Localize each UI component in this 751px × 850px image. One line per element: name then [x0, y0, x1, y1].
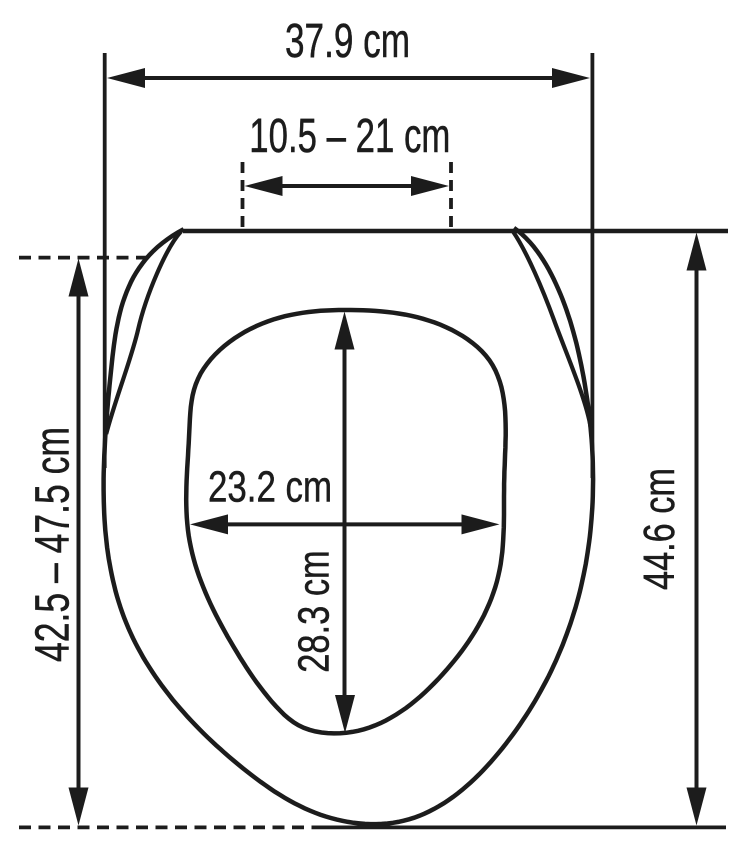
svg-text:28.3 cm: 28.3 cm	[290, 550, 339, 673]
svg-text:44.6 cm: 44.6 cm	[635, 468, 684, 590]
svg-text:42.5 – 47.5 cm: 42.5 – 47.5 cm	[26, 427, 79, 662]
svg-text:23.2 cm: 23.2 cm	[208, 463, 332, 512]
svg-text:37.9 cm: 37.9 cm	[285, 15, 410, 68]
svg-text:10.5 – 21 cm: 10.5 – 21 cm	[249, 110, 450, 163]
